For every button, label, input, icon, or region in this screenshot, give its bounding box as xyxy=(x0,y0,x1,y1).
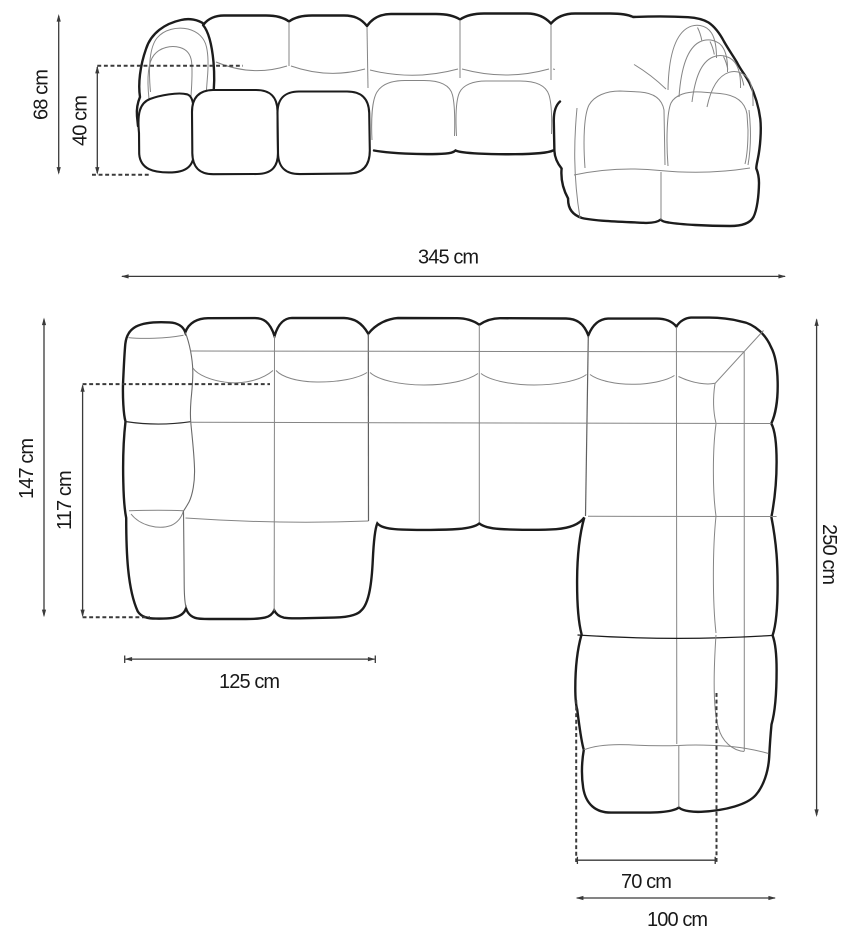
svg-text:117 cm: 117 cm xyxy=(54,471,76,530)
svg-text:70 cm: 70 cm xyxy=(621,871,671,893)
svg-text:250 cm: 250 cm xyxy=(818,524,840,584)
svg-text:147 cm: 147 cm xyxy=(16,439,38,499)
svg-text:100 cm: 100 cm xyxy=(647,909,707,931)
svg-text:345 cm: 345 cm xyxy=(418,247,478,269)
svg-text:40 cm: 40 cm xyxy=(70,96,92,146)
svg-text:125 cm: 125 cm xyxy=(219,671,279,693)
svg-text:68 cm: 68 cm xyxy=(31,70,53,120)
